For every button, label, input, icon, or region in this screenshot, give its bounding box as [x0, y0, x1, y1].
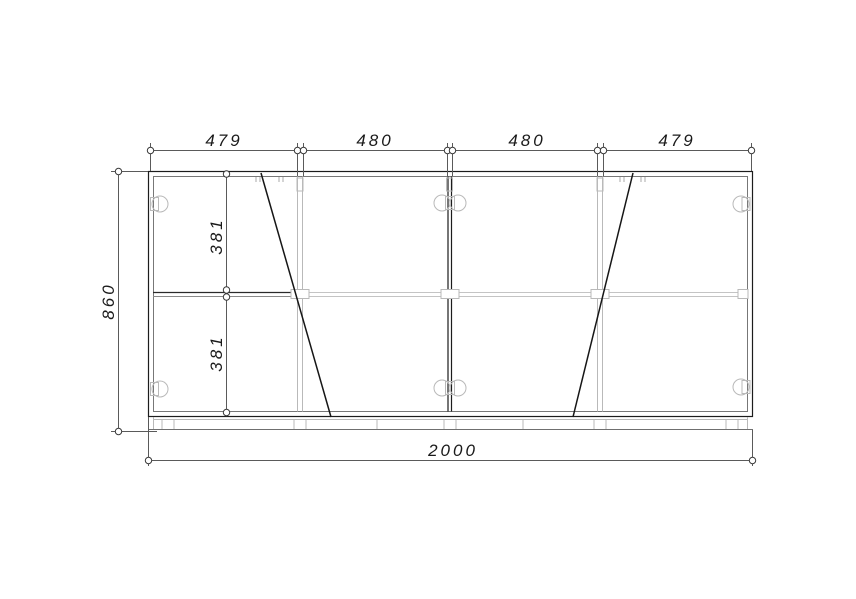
dimension-node [300, 147, 306, 153]
dimension-node [115, 168, 121, 174]
dimension-width-overall: 2000 [145, 417, 755, 466]
dimension-node [223, 294, 229, 300]
drawing-canvas: 479 480 480 479 860 381 381 2000 [0, 0, 856, 599]
dimension-label-section-2: 480 [356, 131, 393, 150]
dimension-node [223, 409, 229, 415]
leg-icon [594, 419, 606, 429]
legs [162, 419, 738, 429]
dimension-label-width: 2000 [427, 441, 478, 460]
dimension-node [145, 457, 151, 463]
dimension-node [294, 147, 300, 153]
dimension-label-section-1: 479 [205, 131, 242, 150]
furniture-drawing: 479 480 480 479 860 381 381 2000 [0, 0, 856, 599]
leg-icon [294, 419, 306, 429]
leg-icon [726, 419, 738, 429]
leg-icon [444, 419, 456, 429]
cabinet-body [148, 172, 753, 430]
dimension-node [748, 147, 754, 153]
dimension-node [115, 428, 121, 434]
dimension-label-inner-top: 381 [207, 217, 226, 254]
shelf-connector-icon [291, 290, 309, 299]
dimension-top-chain: 479 480 480 479 [147, 131, 754, 176]
dimension-node [600, 147, 606, 153]
shelf-connector-icon [591, 290, 609, 299]
dimension-node [223, 287, 229, 293]
shelf-connector-icon [738, 290, 748, 299]
dimension-label-height: 860 [99, 282, 118, 319]
shelf-connector-icon [441, 290, 459, 299]
dimension-label-inner-bottom: 381 [207, 334, 226, 371]
leg-icon [162, 419, 174, 429]
dimension-node [749, 457, 755, 463]
dimension-node [147, 147, 153, 153]
plinth [148, 417, 753, 430]
dimension-label-section-3: 480 [508, 131, 545, 150]
dimension-node [449, 147, 455, 153]
dimension-node [594, 147, 600, 153]
dimension-label-section-4: 479 [658, 131, 695, 150]
dimension-node [223, 171, 229, 177]
